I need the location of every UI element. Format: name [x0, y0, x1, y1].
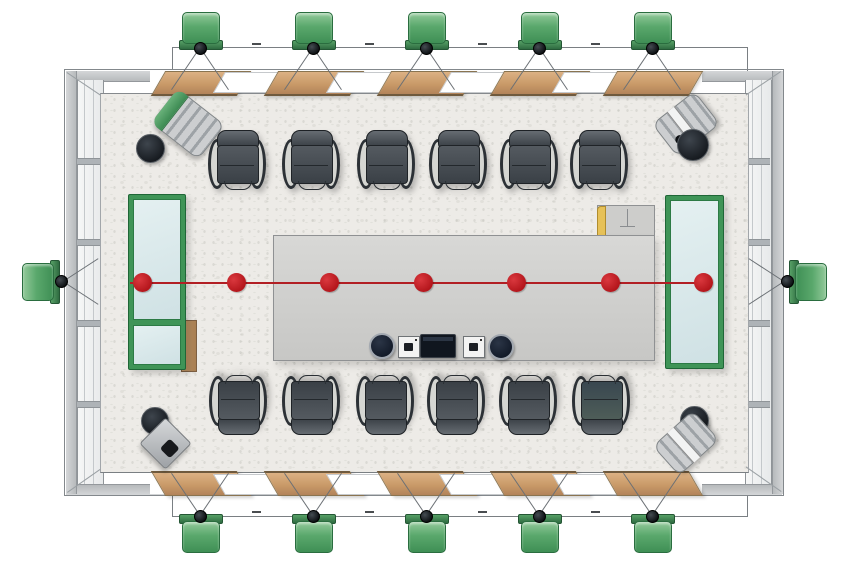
- office-chair: [358, 129, 414, 191]
- speaker-mount: [307, 42, 320, 55]
- office-chair: [500, 374, 556, 436]
- floor-plan: [0, 0, 847, 565]
- table-display: [420, 334, 456, 358]
- reference-marker: [694, 273, 713, 292]
- speaker: [521, 521, 559, 553]
- corner-speaker-woofer: [136, 134, 165, 163]
- office-chair: [571, 129, 627, 191]
- office-chair: [210, 374, 266, 436]
- speaker: [634, 12, 672, 44]
- reference-marker: [601, 273, 620, 292]
- touch-panel: [398, 336, 420, 358]
- wood-panel: [603, 71, 703, 96]
- touch-panel-screen: [404, 343, 413, 351]
- wood-panel: [603, 471, 703, 496]
- dimension-label: [365, 43, 374, 45]
- speaker: [182, 521, 220, 553]
- office-chair: [573, 374, 629, 436]
- speaker-mount: [194, 42, 207, 55]
- speaker: [22, 263, 54, 301]
- speaker-mount: [646, 510, 659, 523]
- office-chair: [428, 374, 484, 436]
- office-chair: [357, 374, 413, 436]
- office-chair: [209, 129, 265, 191]
- office-chair: [283, 374, 339, 436]
- speaker-mount: [533, 510, 546, 523]
- speaker: [795, 263, 827, 301]
- console-mark: [627, 209, 628, 227]
- corner-speaker-woofer: [677, 129, 709, 161]
- speaker-mount: [646, 42, 659, 55]
- touch-panel-screen: [469, 343, 478, 351]
- dimension-label: [252, 511, 261, 513]
- dimension-label: [365, 511, 374, 513]
- reference-marker: [320, 273, 339, 292]
- table-speaker: [488, 334, 514, 360]
- speaker: [182, 12, 220, 44]
- speaker-mount: [781, 275, 794, 288]
- projector-lens: [160, 439, 180, 459]
- dimension-label: [252, 43, 261, 45]
- speaker: [408, 521, 446, 553]
- touch-panel-led: [415, 339, 417, 341]
- dimension-label: [591, 511, 600, 513]
- speaker-mount: [194, 510, 207, 523]
- office-chair: [501, 129, 557, 191]
- glass-pane: [133, 325, 181, 365]
- touch-panel-led: [480, 339, 482, 341]
- dimension-label: [591, 43, 600, 45]
- dimension-label: [478, 511, 487, 513]
- office-chair: [283, 129, 339, 191]
- console-accent: [597, 206, 606, 238]
- reference-marker: [414, 273, 433, 292]
- office-chair: [430, 129, 486, 191]
- speaker: [634, 521, 672, 553]
- glass-pane: [133, 199, 181, 320]
- dimension-label: [478, 43, 487, 45]
- reference-marker: [507, 273, 526, 292]
- speaker-mount: [307, 510, 320, 523]
- speaker-mount: [420, 510, 433, 523]
- speaker-mount: [55, 275, 68, 288]
- reference-marker: [133, 273, 152, 292]
- console-mark: [620, 226, 635, 227]
- touch-panel: [463, 336, 485, 358]
- speaker: [295, 521, 333, 553]
- glass-wall-right: [745, 80, 772, 484]
- speaker: [295, 12, 333, 44]
- display-screen: [423, 337, 453, 341]
- speaker-mount: [420, 42, 433, 55]
- speaker: [408, 12, 446, 44]
- reference-marker: [227, 273, 246, 292]
- speaker: [521, 12, 559, 44]
- table-speaker: [369, 333, 395, 359]
- speaker-band: [667, 427, 701, 463]
- speaker-mount: [533, 42, 546, 55]
